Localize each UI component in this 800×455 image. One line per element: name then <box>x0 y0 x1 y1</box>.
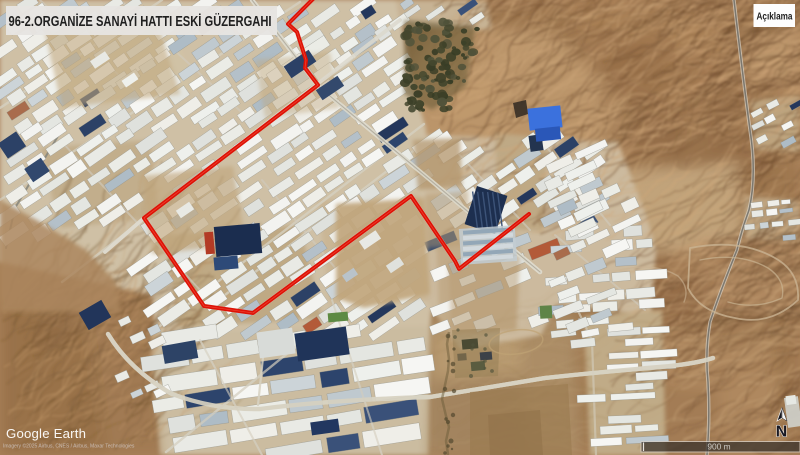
svg-text:N: N <box>776 424 787 441</box>
svg-text:Imagery ©2025 Airbus, CNES / A: Imagery ©2025 Airbus, CNES / Airbus, Max… <box>3 443 135 450</box>
svg-text:96-2.ORGANİZE SANAYİ HATTI ESK: 96-2.ORGANİZE SANAYİ HATTI ESKİ GÜZERGAH… <box>9 13 272 30</box>
svg-text:Açıklama: Açıklama <box>757 11 793 23</box>
svg-text:Google Earth: Google Earth <box>6 426 86 441</box>
svg-text:900 m: 900 m <box>707 442 730 452</box>
